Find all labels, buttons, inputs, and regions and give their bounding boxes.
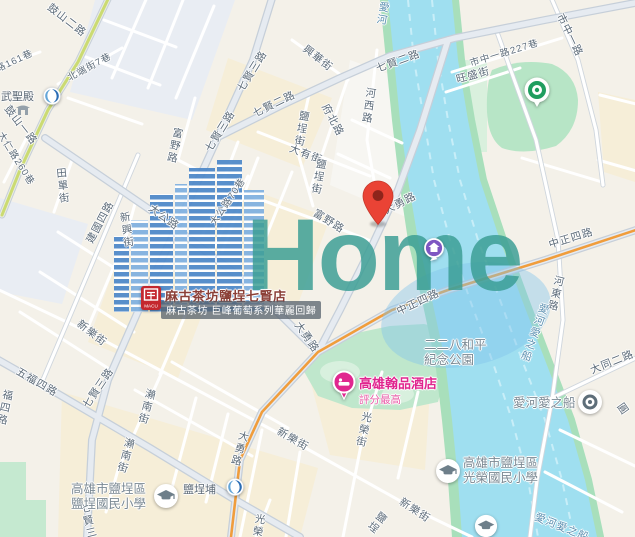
street-label: 大勇路 — [228, 429, 253, 469]
street-label: 七賢二路 — [374, 46, 422, 76]
street-label: 五福四路 — [13, 364, 60, 400]
street-label: 愛河 — [373, 0, 392, 27]
street-label: 北端街7巷 — [64, 48, 113, 83]
poi-station-yanchengpu[interactable]: 鹽埕埔 — [183, 480, 216, 498]
school-icon[interactable] — [153, 483, 179, 509]
street-label: 光榮街 — [247, 512, 268, 537]
shop-promo-text: 麻古茶坊 巨峰葡萄系列華麗回歸 — [166, 306, 316, 317]
street-label: 大勇路 — [291, 319, 323, 356]
street-label: 愛河愛之船 — [533, 509, 592, 537]
hotel-pin-icon[interactable] — [332, 370, 356, 400]
street-label: 路161巷 — [0, 45, 35, 75]
street-label: 圓 — [614, 400, 633, 418]
street-label: 新樂街 — [396, 494, 433, 525]
poi-hotel[interactable]: 高雄翰品酒店 評分最高 — [359, 373, 437, 407]
location-marker-pin[interactable] — [362, 180, 394, 226]
street-label: 富野路 — [310, 205, 347, 236]
street-label: 中正四路 — [394, 285, 442, 318]
street-label: 鹽埕街 — [291, 109, 312, 149]
lodging-pin-icon[interactable] — [424, 238, 444, 262]
school-icon[interactable] — [474, 514, 498, 537]
street-label: 興華街 — [300, 41, 336, 74]
street-label: 瀨南街 — [114, 436, 138, 476]
street-label: 光榮街 — [353, 410, 375, 450]
street-label: 市中一路227巷 — [468, 35, 540, 69]
street-label: 愛河愛之船 — [517, 301, 552, 365]
temple-icon[interactable] — [15, 103, 31, 117]
street-label: 市中一路 — [553, 11, 587, 59]
street-label: 新樂街 — [74, 316, 110, 349]
street-label: 大公路70巷 — [206, 174, 248, 227]
hotel-name-label: 高雄翰品酒店 — [359, 373, 437, 392]
street-label: 鼓山二路 — [44, 0, 89, 40]
station-name-label: 鹽埕埔 — [183, 484, 216, 496]
street-label: 河西路 — [359, 86, 379, 125]
park-icon[interactable] — [523, 76, 551, 108]
metro-station-icon[interactable] — [43, 87, 61, 105]
boat-dock-label: 愛河愛之船 — [513, 396, 576, 410]
street-label: 七賢三路 — [233, 48, 270, 95]
street-label: 田單街 — [54, 167, 73, 206]
shop-promo-banner[interactable]: 麻古茶坊 巨峰葡萄系列華麗回歸 — [161, 301, 321, 319]
boat-dock-icon[interactable] — [577, 389, 603, 415]
poi-school-guangrong[interactable]: 高雄市鹽埕區 光榮國民小學 — [463, 456, 538, 485]
street-label: 大同二路 — [588, 346, 635, 377]
street-label: 府北路 — [318, 101, 347, 139]
poi-boat-dock[interactable]: 愛河愛之船 — [513, 396, 576, 411]
hotel-rating-label: 評分最高 — [359, 392, 437, 407]
temple-name-label: 武聖殿 — [1, 91, 34, 103]
street-label: 福四路 — [0, 388, 16, 428]
street-label: 建國四路 — [83, 198, 118, 246]
street-label: 大公路 — [146, 201, 183, 233]
street-label: 新興街 — [117, 210, 137, 249]
street-label: 七賢二路 — [250, 87, 298, 121]
street-label: 旺盛街 — [454, 63, 491, 86]
park-name-label: 二二八和平 紀念公園 — [424, 338, 487, 367]
poi-shop-macu[interactable]: MACU — [141, 286, 161, 315]
school-icon[interactable] — [435, 458, 461, 484]
svg-text:MACU: MACU — [144, 304, 158, 309]
street-label: 富野路 — [164, 126, 186, 166]
metro-station-icon[interactable] — [226, 478, 244, 496]
street-label: 中正四路 — [547, 224, 595, 252]
street-label: 新樂街 — [274, 424, 311, 454]
street-label: 七賢三路 — [79, 365, 117, 412]
poi-school-yancheng[interactable]: 高雄市鹽埕區 鹽埕國民小學 — [71, 482, 146, 511]
shop-macu-icon: MACU — [141, 286, 161, 310]
street-label: 七賢三路 — [201, 108, 238, 155]
street-label: 瀨南街 — [135, 387, 159, 427]
map-viewport[interactable]: Home 鼓山二路路161巷北端街7巷鼓山一路大仁路260巷田單街建國四路新興街… — [0, 0, 635, 537]
street-label: 鹽埕 — [363, 509, 390, 537]
